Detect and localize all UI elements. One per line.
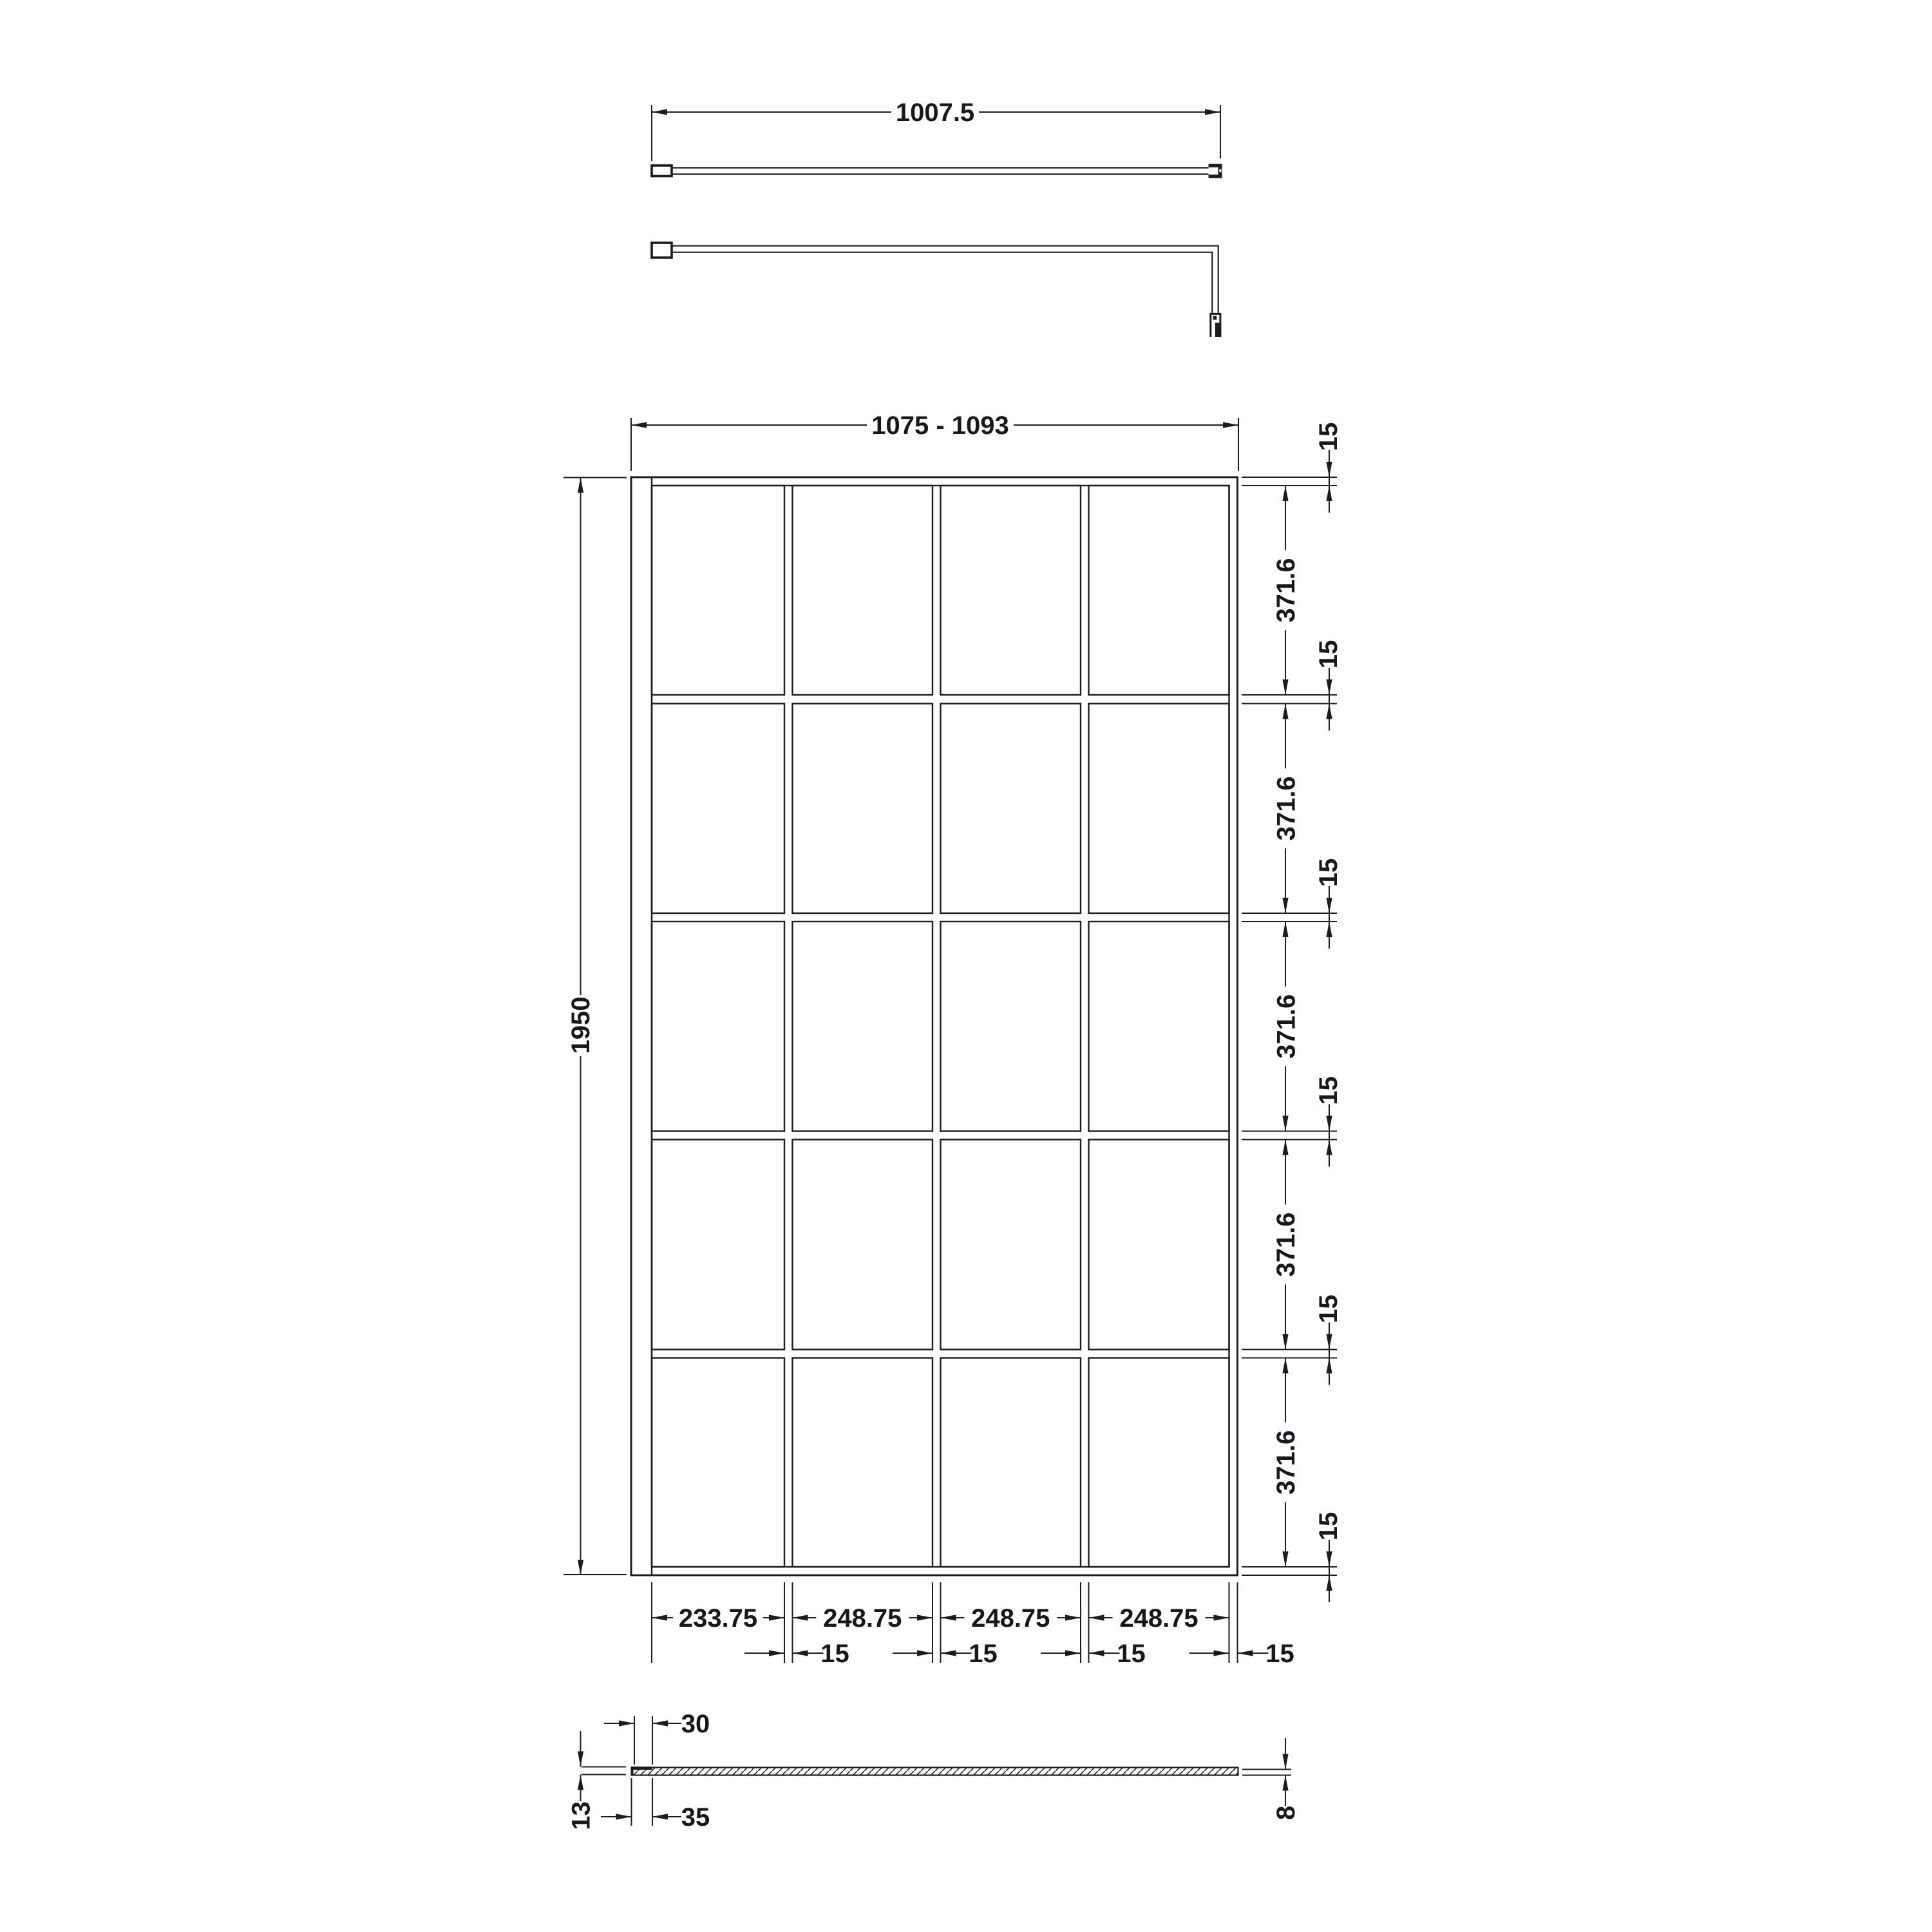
svg-text:15: 15	[1265, 1640, 1294, 1668]
svg-text:30: 30	[681, 1710, 710, 1738]
svg-text:248.75: 248.75	[1119, 1604, 1198, 1633]
svg-text:13: 13	[567, 1801, 596, 1830]
svg-text:8: 8	[1272, 1806, 1300, 1820]
svg-text:371.6: 371.6	[1272, 558, 1300, 622]
svg-text:15: 15	[969, 1640, 998, 1668]
svg-text:248.75: 248.75	[823, 1604, 902, 1633]
svg-text:15: 15	[1314, 858, 1343, 887]
svg-text:1007.5: 1007.5	[896, 99, 974, 127]
svg-text:15: 15	[1314, 640, 1343, 669]
svg-text:15: 15	[1314, 422, 1343, 451]
svg-text:1950: 1950	[567, 997, 595, 1054]
svg-text:35: 35	[681, 1803, 710, 1832]
svg-text:15: 15	[1314, 1294, 1343, 1323]
svg-text:15: 15	[1314, 1512, 1343, 1541]
svg-text:371.6: 371.6	[1272, 1212, 1300, 1276]
svg-text:233.75: 233.75	[679, 1604, 757, 1633]
svg-text:1075 - 1093: 1075 - 1093	[871, 412, 1009, 440]
svg-text:15: 15	[820, 1640, 849, 1668]
svg-text:15: 15	[1117, 1640, 1146, 1668]
svg-text:371.6: 371.6	[1272, 1430, 1300, 1495]
svg-text:248.75: 248.75	[971, 1604, 1050, 1633]
svg-text:371.6: 371.6	[1272, 776, 1300, 840]
svg-text:371.6: 371.6	[1272, 994, 1300, 1059]
svg-text:15: 15	[1314, 1076, 1343, 1105]
